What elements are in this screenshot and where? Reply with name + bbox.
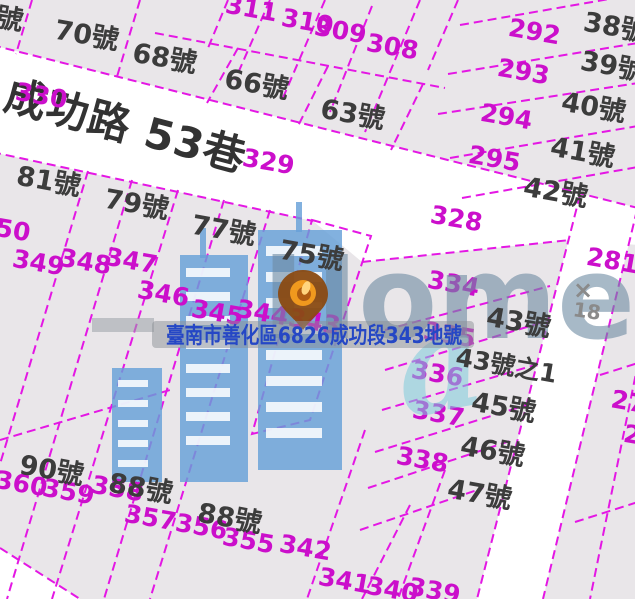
survey-mark-value: 18 xyxy=(572,297,603,325)
annotation-text: 臺南市善化區6826成功段343地號 xyxy=(166,323,462,349)
cadastral-map: 成功路 53巷 311 310 309 308 292 2 xyxy=(0,0,635,599)
map-canvas[interactable]: 成功路 53巷 311 310 309 308 292 2 xyxy=(0,0,635,599)
watermark-bar xyxy=(92,318,154,332)
